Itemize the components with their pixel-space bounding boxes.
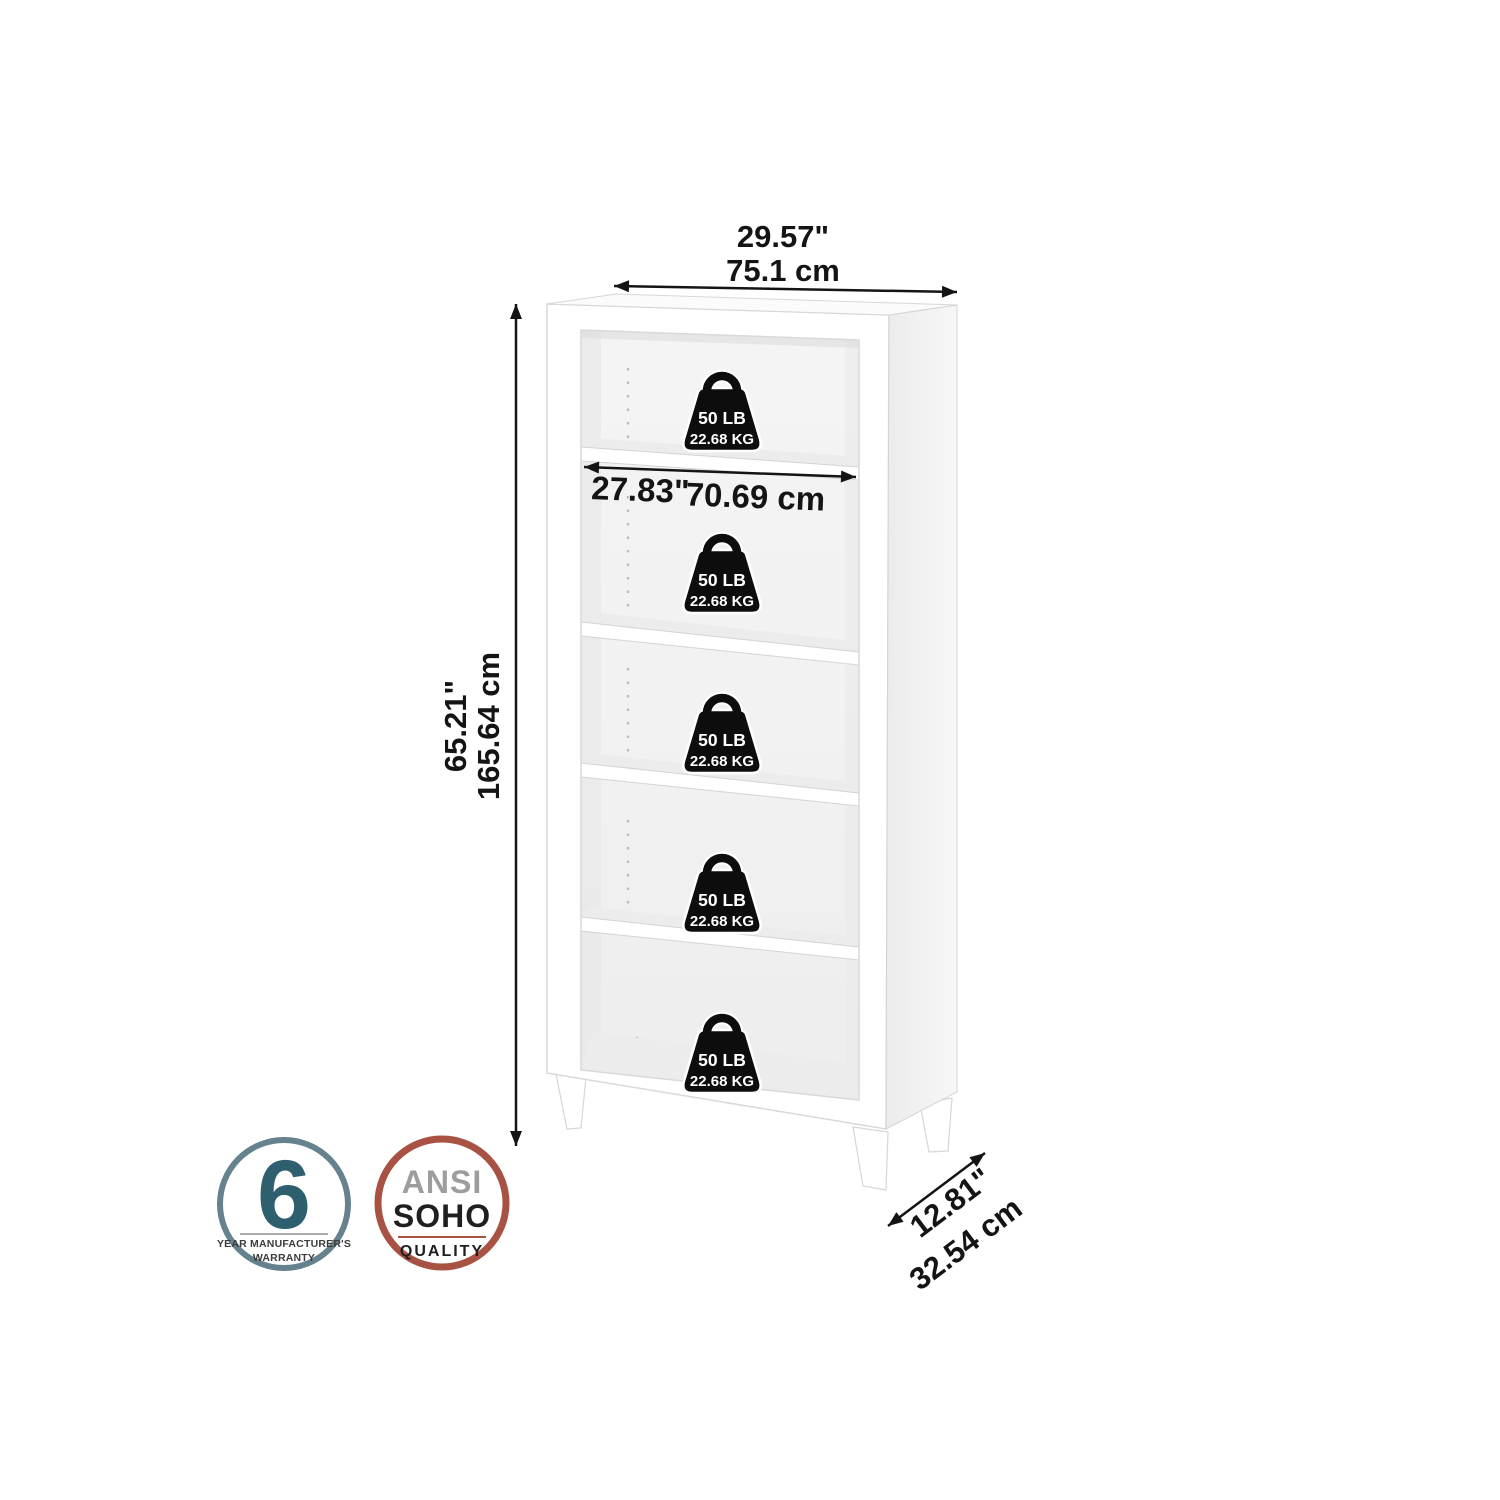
weight-lb-label: 50 LB <box>698 1050 746 1070</box>
height-cm-label: 165.64 cm <box>471 652 506 800</box>
weight-kg-label: 22.68 KG <box>690 753 754 770</box>
height-inches-label: 65.21" <box>438 680 473 772</box>
quality-soho-label: SOHO <box>393 1198 491 1234</box>
diagram-svg: 50 LB 22.68 KG 50 LB 22.68 KG 50 LB 22.6… <box>0 0 1500 1500</box>
warranty-line2: WARRANTY <box>253 1252 315 1264</box>
weight-lb-label: 50 LB <box>698 408 746 428</box>
shelf-width-cm-label: 70.69 cm <box>685 475 826 517</box>
leg-front-left <box>556 1074 586 1129</box>
warranty-line1: YEAR MANUFACTURER'S <box>217 1238 351 1250</box>
quality-badge: ANSI SOHO QUALITY <box>378 1139 506 1267</box>
weight-lb-label: 50 LB <box>698 890 746 910</box>
shelf-width-inches-label: 27.83" <box>591 469 691 510</box>
height-dimension: 65.21" 165.64 cm <box>438 304 516 1146</box>
weight-kg-label: 22.68 KG <box>690 593 754 610</box>
quality-ansi-label: ANSI <box>402 1164 482 1200</box>
weight-lb-label: 50 LB <box>698 570 746 590</box>
weight-kg-label: 22.68 KG <box>690 1073 754 1090</box>
bookcase: 50 LB 22.68 KG 50 LB 22.68 KG 50 LB 22.6… <box>547 294 957 1190</box>
width-dimension: 29.57" 75.1 cm <box>614 219 957 292</box>
quality-label: QUALITY <box>400 1243 484 1260</box>
interior-right-wall <box>845 339 859 1100</box>
weight-lb-label: 50 LB <box>698 730 746 750</box>
width-inches-label: 29.57" <box>737 219 829 254</box>
depth-dimension: 12.81" 32.54 cm <box>888 1153 1029 1297</box>
product-dimension-diagram: 50 LB 22.68 KG 50 LB 22.68 KG 50 LB 22.6… <box>0 0 1500 1500</box>
weight-kg-label: 22.68 KG <box>690 431 754 448</box>
leg-front-right <box>853 1127 888 1190</box>
warranty-years: 6 <box>257 1140 311 1249</box>
width-cm-label: 75.1 cm <box>726 253 840 288</box>
warranty-badge: 6 YEAR MANUFACTURER'S WARRANTY <box>217 1140 351 1268</box>
side-panel <box>886 305 957 1129</box>
weight-kg-label: 22.68 KG <box>690 913 754 930</box>
